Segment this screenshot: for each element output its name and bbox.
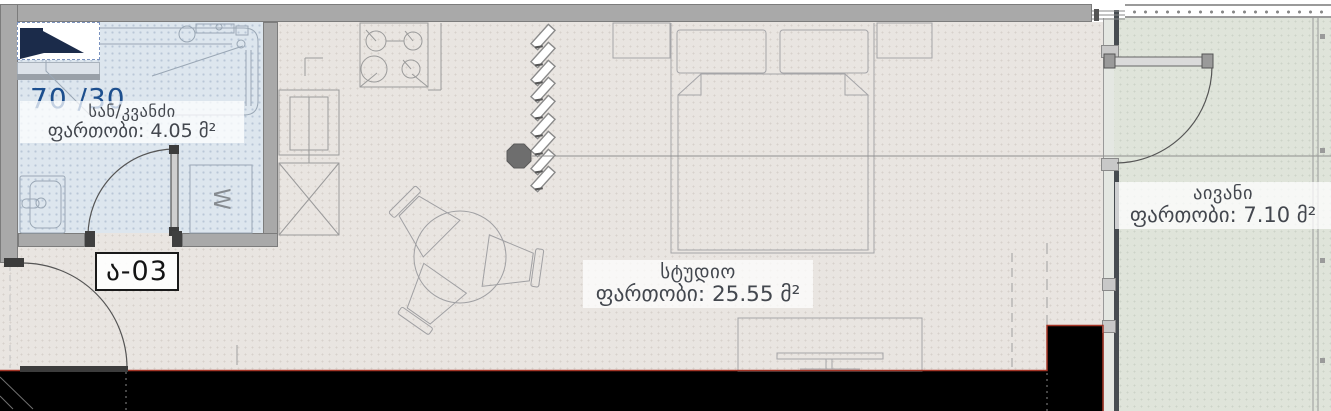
bathroom-door — [85, 145, 182, 247]
bathroom-label: სან/კვანძი ფართობი: 4.05 მ² — [20, 101, 244, 143]
nightstand-left — [613, 23, 670, 58]
boundary-red-line — [0, 326, 1103, 411]
dining-set — [384, 181, 545, 339]
balcony-label: აივანი ფართობი: 7.10 მ² — [1115, 182, 1331, 229]
logo-mark — [18, 23, 101, 61]
pillow-right — [780, 30, 868, 73]
tv-unit — [738, 318, 922, 371]
chair — [482, 235, 545, 294]
studio-label: სტუდიო ფართობი: 25.55 მ² — [583, 260, 813, 308]
washing-machine-symbol: W — [192, 173, 250, 225]
chair — [384, 181, 460, 257]
column — [507, 144, 531, 168]
bathroom-area: ფართობი: 4.05 მ² — [24, 121, 240, 142]
balcony-door — [1104, 54, 1213, 163]
kitchen-fixtures — [279, 23, 441, 235]
washer-letter: W — [209, 188, 234, 210]
balcony-name: აივანი — [1119, 184, 1327, 204]
nightstand-right — [877, 23, 932, 58]
unit-code-box: ა-03 — [95, 252, 179, 291]
top-window — [1092, 9, 1125, 21]
developer-logo — [17, 22, 100, 60]
bathroom-name: სან/კვანძი — [24, 103, 240, 121]
chair — [392, 263, 467, 339]
bed — [613, 23, 932, 253]
floor-plan: W 70 /30 სან/კვანძი ფართობი: 4.05 მ² სტუ… — [0, 0, 1331, 411]
balcony-area: ფართობი: 7.10 მ² — [1119, 204, 1327, 227]
studio-name: სტუდიო — [587, 262, 809, 283]
unit-code: ა-03 — [106, 256, 168, 287]
partition-hatch — [531, 24, 556, 192]
pillow-left — [677, 30, 766, 73]
studio-area: ფართობი: 25.55 მ² — [587, 283, 809, 306]
